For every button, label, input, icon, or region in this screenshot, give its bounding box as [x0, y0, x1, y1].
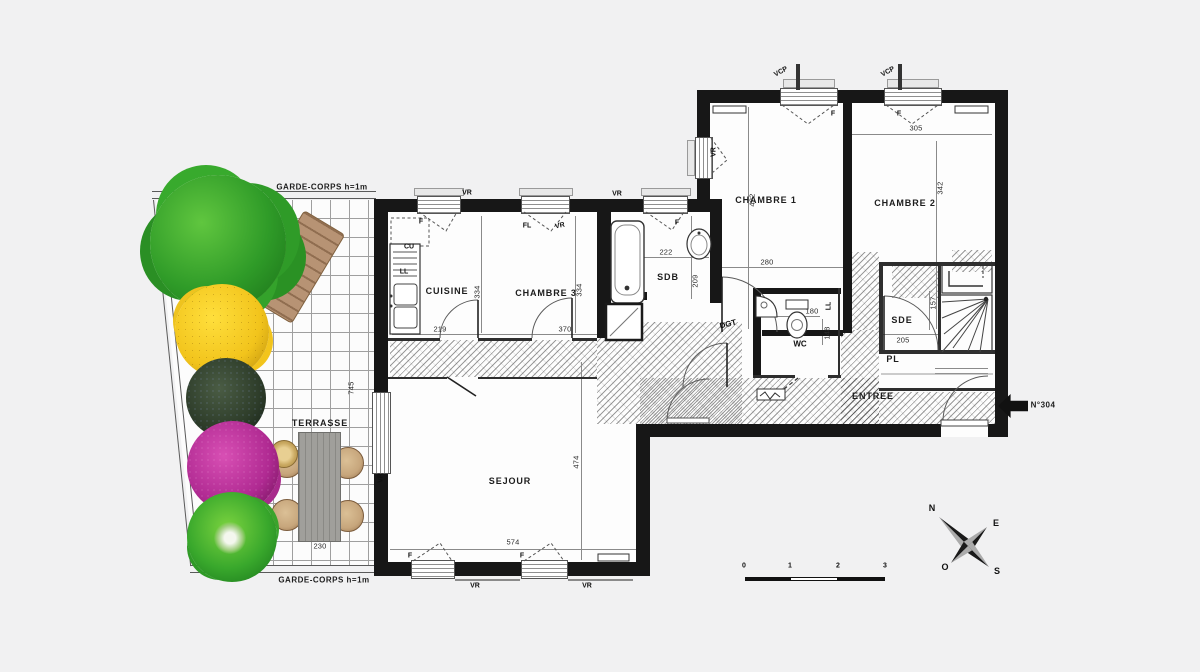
hatch-shower [892, 266, 940, 298]
window-sill [887, 79, 939, 88]
wall-exterior [697, 90, 1008, 103]
wall-exterior [374, 199, 388, 576]
dim-chambre1-height: 422 [748, 193, 757, 206]
tag-f: F [675, 220, 679, 227]
table [298, 432, 341, 542]
dim-line [722, 267, 843, 268]
tag-vr: VR [462, 190, 472, 197]
tag-vr: VR [582, 583, 592, 590]
dim-line [392, 334, 597, 335]
room-label-chambre3: CHAMBRE 3 [515, 288, 577, 298]
tag-ll: LL [400, 269, 409, 276]
wall [597, 212, 611, 338]
window [884, 88, 942, 106]
tag-f: F [408, 553, 412, 560]
wall-wc [838, 288, 840, 376]
window [521, 196, 570, 214]
scale-bar-segment [838, 577, 885, 581]
dim-line [852, 134, 992, 135]
compass-north: N [929, 503, 936, 513]
window-sill [519, 188, 573, 196]
dim-wc-height: 148 [823, 326, 832, 339]
wall-pl [879, 388, 995, 391]
landing-step [935, 368, 988, 369]
landing-step [935, 373, 988, 374]
dim-chambre1-width: 280 [760, 258, 773, 267]
wall-wc [753, 288, 841, 294]
window-sill [641, 188, 691, 196]
wall [597, 292, 647, 300]
tag-ll: LL [826, 302, 833, 311]
wall-wc [753, 288, 761, 378]
room-label-sde: SDE [891, 315, 912, 325]
wall [843, 103, 852, 333]
wall-wc [828, 375, 841, 378]
window-sill [687, 140, 695, 176]
vcp-vent [796, 64, 800, 90]
window [417, 196, 461, 214]
unit-number: N°304 [1031, 401, 1056, 410]
tag-vcp: VCP [880, 66, 896, 79]
window-sill [455, 579, 520, 581]
entrance-door-gap [941, 424, 988, 437]
window [411, 560, 455, 579]
wall-exterior [636, 430, 650, 576]
window-sill [568, 579, 633, 581]
tag-fl: FL [523, 223, 532, 230]
dim-cuisine-width: 219 [433, 325, 446, 334]
room-label-sdb: SDB [657, 272, 679, 282]
wall-sde [879, 262, 995, 266]
window [695, 137, 713, 179]
hatch-corridor [390, 340, 597, 377]
tag-cu: CU [404, 244, 414, 251]
compass-east: E [993, 518, 999, 528]
scale-tick: 2 [836, 563, 840, 570]
window-sill [783, 79, 835, 88]
dim-line [390, 549, 636, 550]
dim-sde-width: 205 [896, 336, 909, 345]
tag-f: F [831, 111, 835, 118]
window-sill [414, 188, 464, 196]
wall-sde [879, 262, 883, 354]
wall-partition [478, 338, 532, 341]
scale-tick: 3 [883, 563, 887, 570]
dim-terrasse-height: 745 [347, 381, 356, 394]
scale-bar-segment [790, 577, 838, 581]
wall-wc [753, 375, 795, 378]
dim-sejour-width: 574 [506, 538, 519, 547]
wall-partition [478, 377, 597, 379]
scale-bar-segment [745, 577, 790, 581]
wall [710, 199, 722, 303]
dim-line [575, 216, 576, 333]
scale-tick: 0 [742, 563, 746, 570]
dim-sdb-width: 222 [659, 248, 672, 257]
dim-chambre2-height: 342 [936, 181, 945, 194]
plant-flower-center [214, 522, 246, 554]
window [521, 560, 568, 579]
dim-terrasse-width: 230 [313, 542, 326, 551]
room-label-terrasse: TERRASSE [292, 418, 348, 428]
dim-line [748, 107, 749, 329]
garde-corps-label-bottom: GARDE-CORPS h=1m [278, 576, 369, 585]
room-label-pl: PL [886, 354, 899, 364]
hatch-closet-corner [952, 250, 992, 272]
dim-wc-width: 180 [805, 307, 818, 316]
wall-stairs [938, 262, 941, 354]
hatch-hall-strip [841, 330, 879, 424]
dim-sejour-height: 474 [572, 455, 581, 468]
garde-corps-label-top: GARDE-CORPS h=1m [276, 183, 367, 192]
room-label-wc: WC [793, 340, 806, 349]
dim-line [581, 362, 582, 560]
tag-vr: VR [711, 147, 718, 157]
hatch-entry-east [879, 392, 995, 424]
compass-west: O [941, 562, 948, 572]
dim-chambre2-width: 305 [909, 124, 922, 133]
tag-vr: VR [378, 473, 385, 483]
dim-chambre3-width: 370 [558, 325, 571, 334]
dim-cuisine-height: 334 [473, 285, 482, 298]
tag-f: F [419, 219, 423, 226]
dim-sdb-height: 209 [691, 274, 700, 287]
tag-f: F [897, 111, 901, 118]
vcp-vent [898, 64, 902, 90]
window [643, 196, 688, 214]
tag-f: F [520, 553, 524, 560]
room-label-cuisine: CUISINE [426, 286, 469, 296]
dim-sde-height: 157 [929, 296, 938, 309]
dim-line [644, 257, 709, 258]
tag-vr: VR [470, 583, 480, 590]
room-label-sejour: SEJOUR [489, 476, 531, 486]
window [780, 88, 838, 106]
wall-partition [388, 377, 447, 379]
dim-chambre3-height: 334 [575, 283, 584, 296]
wall-partition [388, 338, 440, 341]
dim-line [481, 216, 482, 333]
wall-partition [572, 338, 597, 341]
wall-exterior [995, 90, 1008, 437]
room-label-chambre2: CHAMBRE 2 [874, 198, 936, 208]
tag-vr: VR [612, 191, 622, 198]
terrace-door [372, 392, 391, 474]
scale-tick: 1 [788, 563, 792, 570]
floor-plan: CUISINE CHAMBRE 3 SDB CHAMBRE 1 CHAMBRE … [0, 0, 1200, 672]
room-label-chambre1: CHAMBRE 1 [735, 195, 797, 205]
compass-south: S [994, 566, 1000, 576]
room-label-entree: ENTREE [852, 391, 894, 401]
dim-line [762, 316, 820, 317]
tag-vcp: VCP [773, 66, 789, 79]
